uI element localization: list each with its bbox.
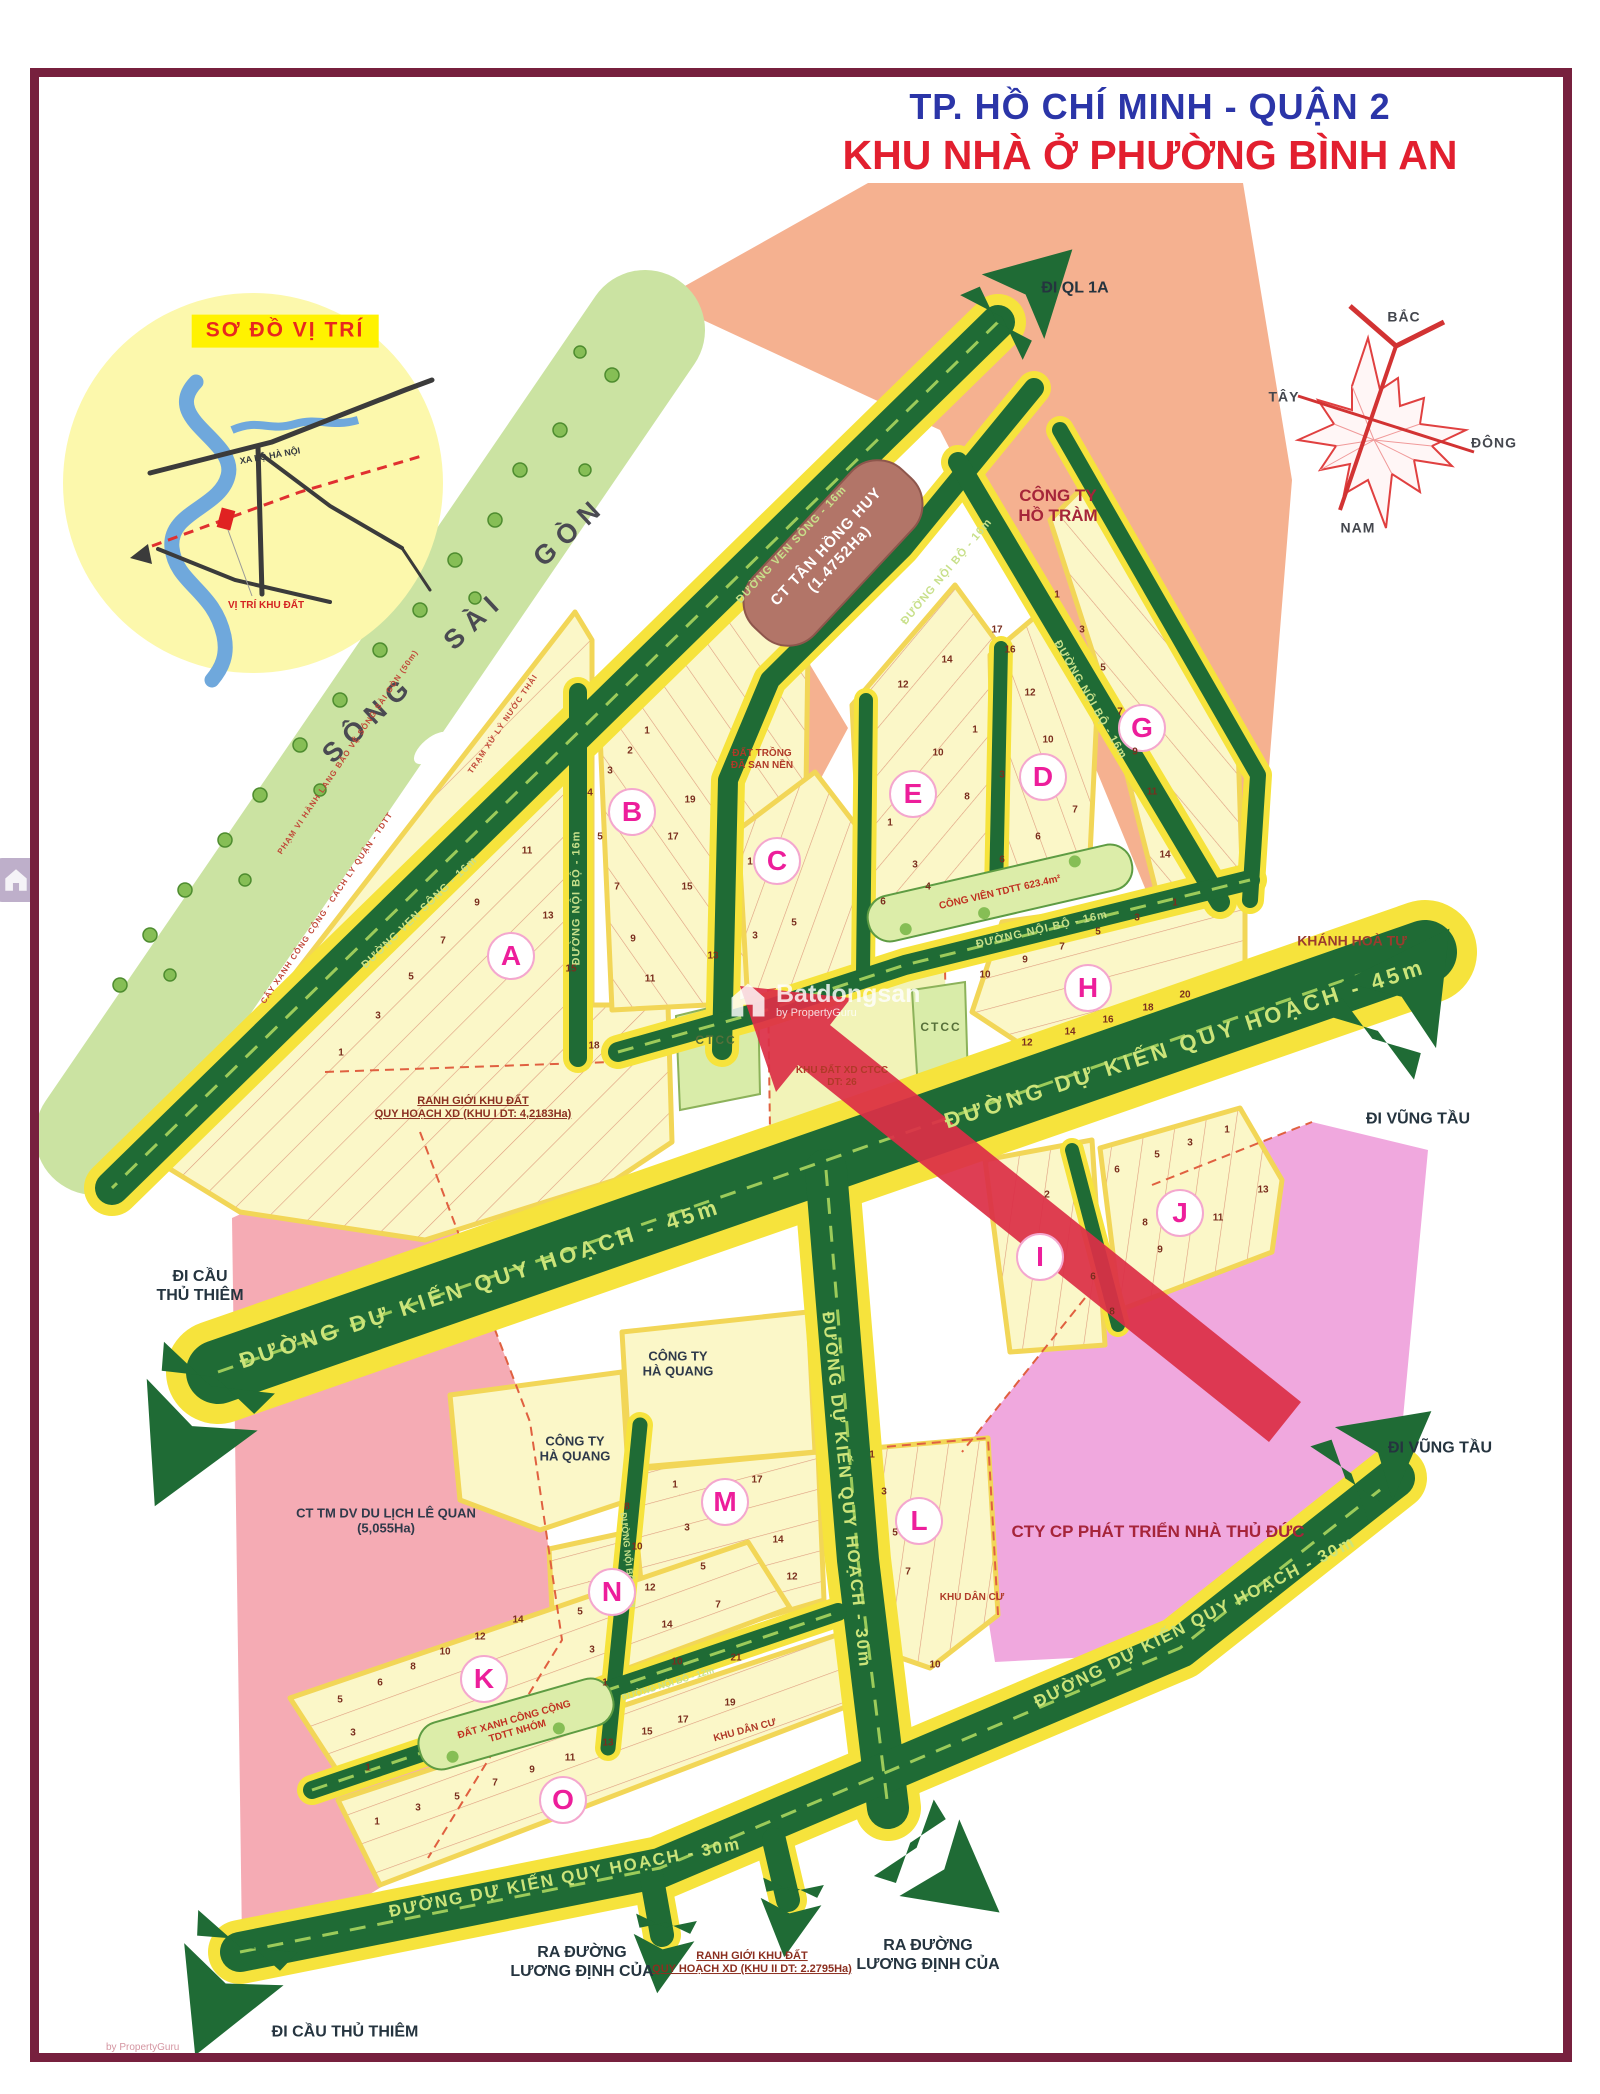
title-project: KHU NHÀ Ở PHƯỜNG BÌNH AN [820,132,1480,179]
map-canvas [0,0,1600,2094]
watermark-brand: Batdongsan [776,982,920,1007]
watermark-house-icon [728,980,768,1020]
planning-map-page: ĐI QL 1ASÔNG SÀI GÒNPHẠM VI HÀNH LANG BẢ… [0,0,1600,2094]
footer-watermark: by PropertyGuru [106,2042,179,2053]
title-city: TP. HỒ CHÍ MINH - QUẬN 2 [820,86,1480,128]
watermark-sub: by PropertyGuru [776,1007,920,1019]
page-title: TP. HỒ CHÍ MINH - QUẬN 2 KHU NHÀ Ở PHƯỜN… [820,86,1480,179]
ha-quang-lower [450,1372,630,1530]
edge-watermark-icon [0,858,38,902]
compass-rose-icon [1298,306,1474,528]
watermark: Batdongsan by PropertyGuru [728,980,920,1020]
